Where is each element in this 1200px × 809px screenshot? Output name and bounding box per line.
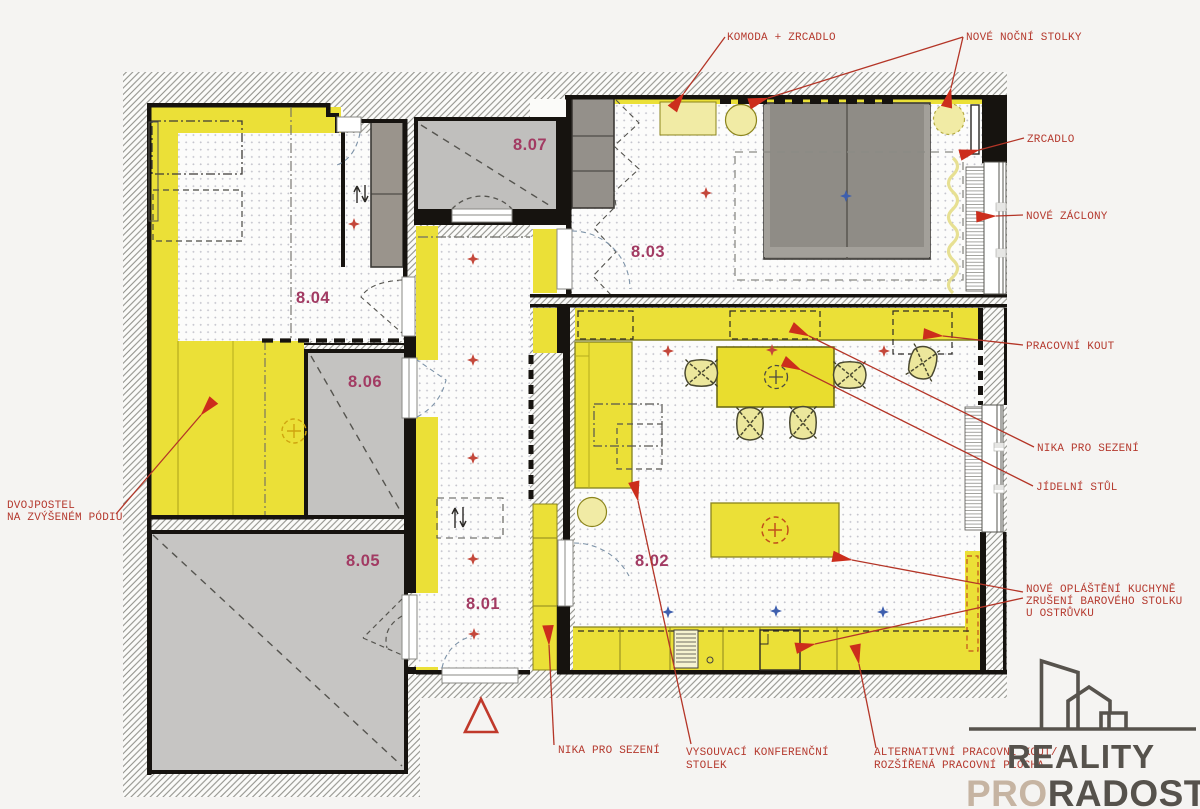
svg-text:NIKA PRO SEZENÍ: NIKA PRO SEZENÍ [558, 743, 660, 757]
svg-text:8.06: 8.06 [348, 373, 382, 391]
svg-text:8.07: 8.07 [513, 136, 547, 154]
svg-text:NOVÉ ZÁCLONY: NOVÉ ZÁCLONY [1026, 209, 1108, 223]
svg-text:8.05: 8.05 [346, 552, 380, 570]
svg-text:NIKA PRO SEZENÍ: NIKA PRO SEZENÍ [1037, 441, 1139, 455]
svg-text:8.03: 8.03 [631, 243, 665, 261]
svg-text:REALITY: REALITY [1007, 738, 1155, 775]
svg-text:STOLEK: STOLEK [686, 760, 727, 772]
svg-text:JÍDELNÍ STŮL: JÍDELNÍ STŮL [1036, 480, 1118, 494]
svg-text:ZRUŠENÍ BAROVÉHO STOLKU: ZRUŠENÍ BAROVÉHO STOLKU [1026, 594, 1182, 608]
svg-text:NOVÉ NOČNÍ STOLKY: NOVÉ NOČNÍ STOLKY [966, 30, 1082, 44]
svg-text:8.04: 8.04 [296, 289, 330, 307]
svg-text:ZRCADLO: ZRCADLO [1027, 134, 1075, 146]
svg-text:NOVÉ OPLÁŠTĚNÍ KUCHYNĚ: NOVÉ OPLÁŠTĚNÍ KUCHYNĚ [1026, 582, 1176, 596]
svg-text:VYSOUVACÍ KONFERENČNÍ: VYSOUVACÍ KONFERENČNÍ [686, 745, 829, 759]
svg-text:DVOJPOSTEL: DVOJPOSTEL [7, 500, 75, 512]
svg-text:8.01: 8.01 [466, 595, 500, 613]
svg-text:NA ZVÝŠENÉM PÓDIU: NA ZVÝŠENÉM PÓDIU [7, 510, 123, 524]
svg-text:PRORADOST: PRORADOST [966, 773, 1200, 809]
svg-text:KOMODA + ZRCADLO: KOMODA + ZRCADLO [727, 32, 836, 44]
svg-text:U OSTRŮVKU: U OSTRŮVKU [1026, 606, 1094, 620]
svg-text:PRACOVNÍ KOUT: PRACOVNÍ KOUT [1026, 339, 1115, 353]
